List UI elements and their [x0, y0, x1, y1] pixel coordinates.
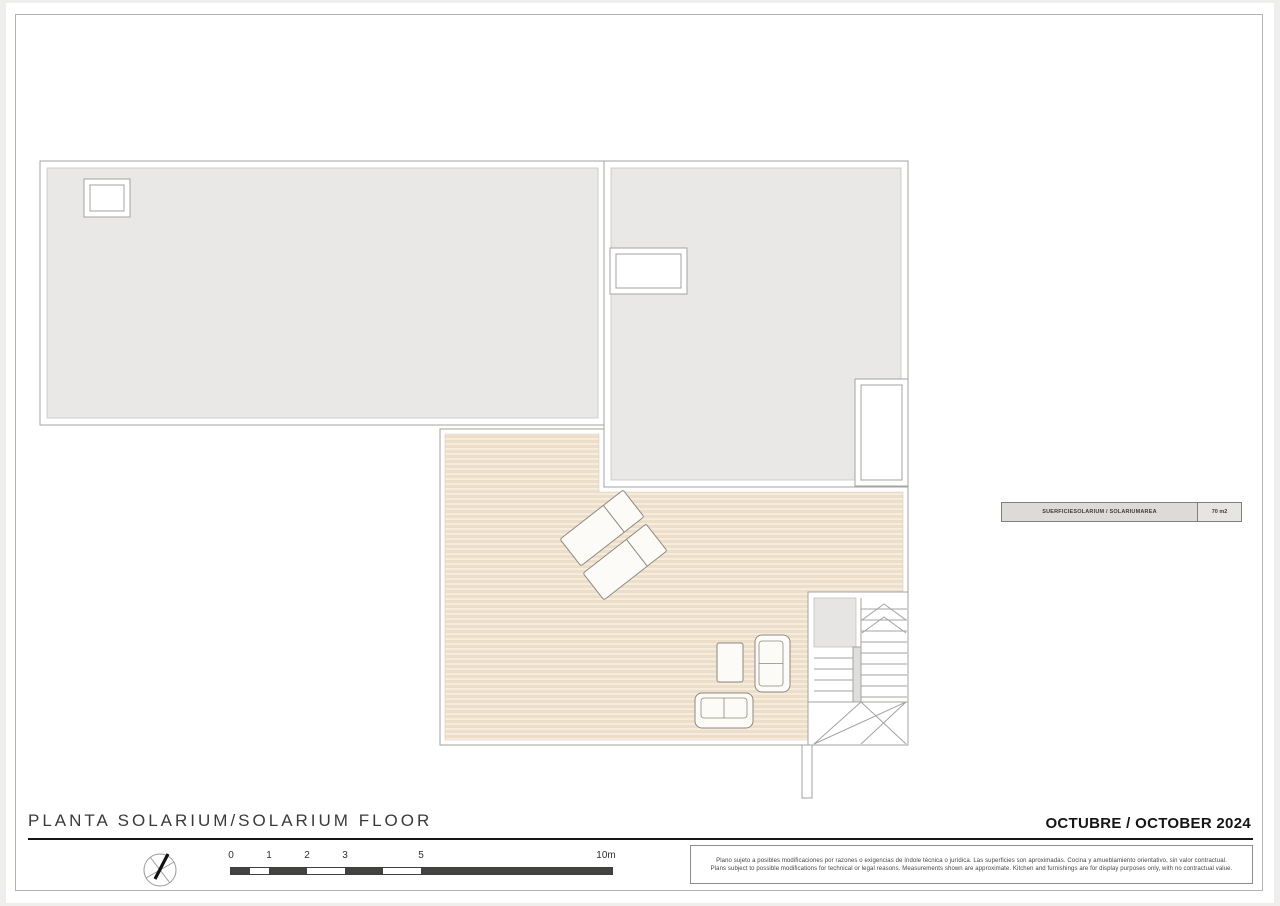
plan-title: PLANTA SOLARIUM/SOLARIUM FLOOR — [28, 811, 432, 831]
roof-area-right — [604, 161, 908, 487]
scale-segment — [250, 868, 269, 874]
scale-tick: 3 — [342, 850, 348, 861]
roof-area-left — [40, 161, 605, 425]
disclaimer-line-en: Plans subject to possible modifications … — [711, 866, 1233, 872]
scale-tick: 5 — [418, 850, 424, 861]
area-table-value: 70 m2 — [1197, 503, 1241, 521]
roof-skylight-right — [610, 248, 687, 294]
sofa-two-seater-horizontal — [695, 693, 753, 728]
staircase — [802, 592, 908, 798]
scale-segment — [307, 868, 345, 874]
area-table-label: SUERFICIESOLARIUM / SOLARIUMAREA — [1002, 503, 1197, 521]
scale-segment — [345, 868, 383, 874]
scale-segment — [269, 868, 307, 874]
roof-skylight-left — [84, 179, 130, 217]
stair-stringer — [853, 647, 861, 702]
scale-tick: 2 — [304, 850, 310, 861]
wall-stub — [802, 745, 812, 798]
area-table: SUERFICIESOLARIUM / SOLARIUMAREA 70 m2 — [1001, 502, 1242, 522]
north-compass-icon — [139, 848, 181, 896]
scale-segment — [231, 868, 250, 874]
title-divider-line — [28, 838, 1253, 840]
disclaimer-line-es: Plano sujeto a posibles modificaciones p… — [716, 858, 1227, 864]
stair-landing — [814, 598, 856, 647]
scale-tick: 0 — [228, 850, 234, 861]
plan-sheet-screen: SUERFICIESOLARIUM / SOLARIUMAREA 70 m2 P… — [0, 0, 1280, 906]
scale-tick: 10m — [596, 850, 615, 861]
scale-segment — [383, 868, 421, 874]
coffee-table — [717, 643, 743, 682]
sofa-two-seater-vertical — [755, 635, 790, 692]
scale-tick: 1 — [266, 850, 272, 861]
disclaimer-box: Plano sujeto a posibles modificaciones p… — [690, 845, 1253, 884]
roof-void — [855, 379, 908, 486]
scale-segment — [421, 868, 612, 874]
plan-date: OCTUBRE / OCTOBER 2024 — [1045, 815, 1251, 832]
floor-plan-drawing — [0, 0, 1280, 906]
graphic-scale-bar — [230, 867, 613, 875]
